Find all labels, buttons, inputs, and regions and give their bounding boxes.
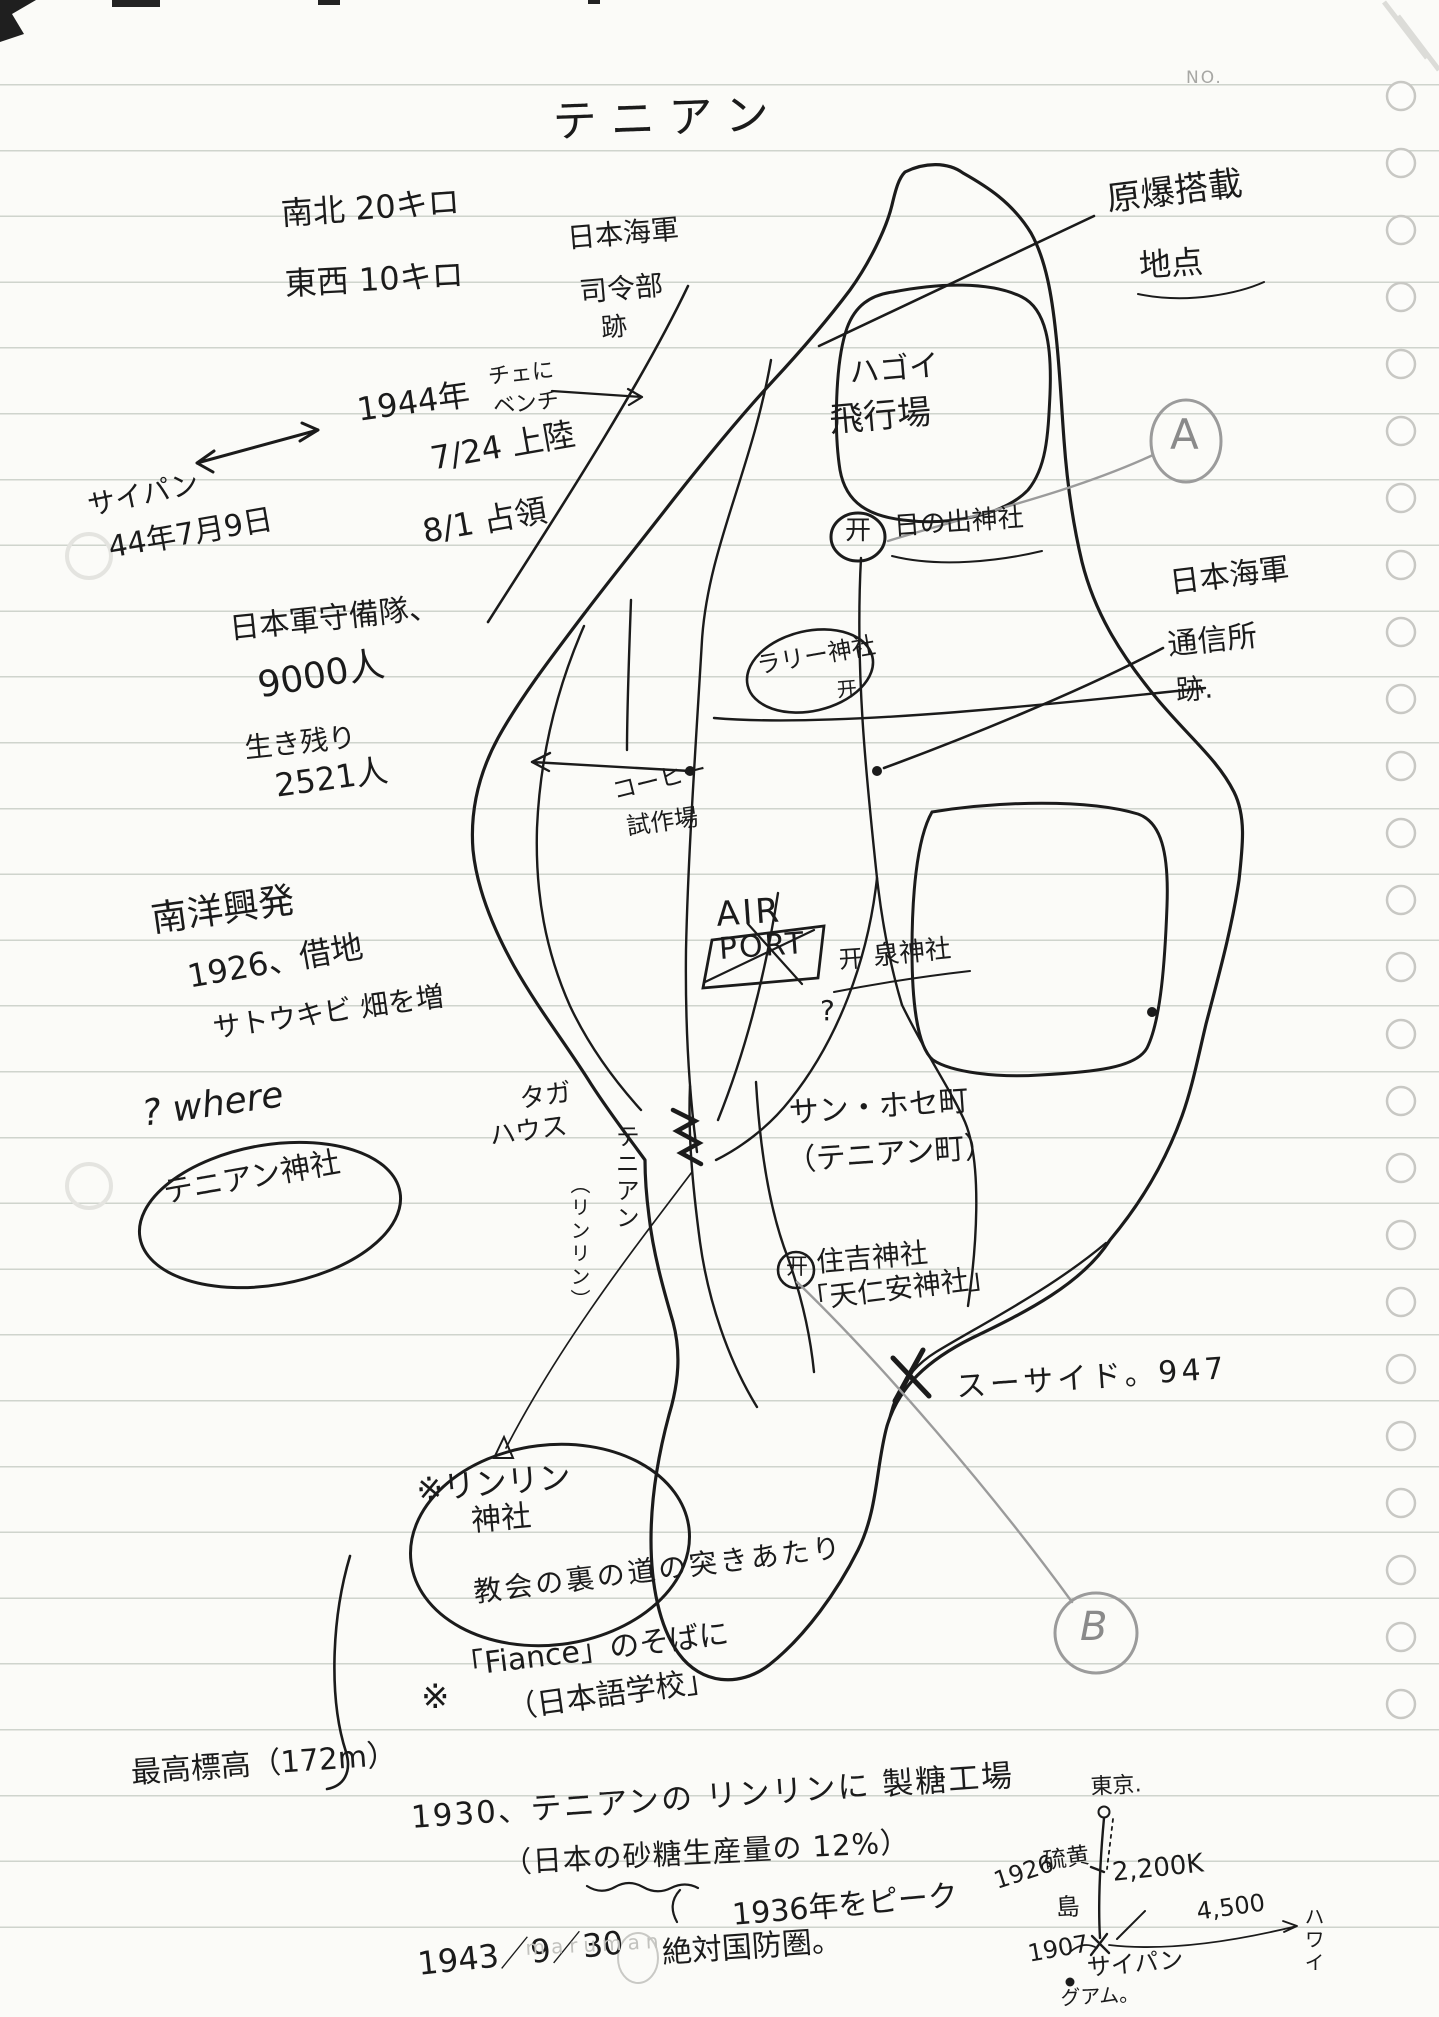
marker-b-label: B xyxy=(1080,1606,1107,1648)
isthmus-scribble xyxy=(673,1110,701,1164)
navy-hq-line2: 司令部 xyxy=(578,271,664,308)
field-region xyxy=(912,803,1167,1076)
fiance-asterisk: ※ xyxy=(421,1680,450,1716)
navy-comm-line3: 跡. xyxy=(1175,673,1214,705)
rinrin-vertical-label: （リンリン） xyxy=(568,1174,589,1314)
scan-artifacts xyxy=(0,0,1439,70)
izumi-torii-icon: 开 xyxy=(838,946,864,973)
pencil-markers xyxy=(618,400,1221,1983)
punch-holes xyxy=(67,534,111,1208)
airfield-label-line2: 飛行場 xyxy=(828,395,933,439)
route-tokyo-label: 東京. xyxy=(1090,1773,1142,1799)
sumiyoshi-torii-icon: 开 xyxy=(786,1256,808,1279)
tinian-vertical-label: テニアン xyxy=(612,1124,637,1264)
hand-drawn-map xyxy=(0,0,1439,2017)
route-hawaii-label: ハワイ xyxy=(1302,1906,1323,1996)
binder-holes xyxy=(1387,82,1415,1718)
rinrin-shrine-line2: 神社 xyxy=(470,1501,533,1538)
rally-torii-icon: 开 xyxy=(836,678,858,701)
route-iwojima-label-2: 島 xyxy=(1055,1894,1081,1921)
airfield-label-line1: ハゴイ xyxy=(848,350,940,389)
page-title: テニアン xyxy=(552,92,784,146)
emphasis-marks xyxy=(587,1883,698,1922)
island-outline xyxy=(472,165,1242,1680)
route-guam-label: グアム。 xyxy=(1060,1984,1140,2009)
izumi-question-mark: ? xyxy=(820,996,835,1025)
suicide-x-mark xyxy=(893,1350,929,1401)
airport-label-port: PORT xyxy=(718,928,807,965)
navy-hq-line3: 跡 xyxy=(600,314,628,343)
abomb-note-line2: 地点 xyxy=(1138,246,1204,284)
marker-a-label: A xyxy=(1170,413,1199,457)
no-label: NO. xyxy=(1186,70,1223,88)
hinode-torii-icon: 开 xyxy=(845,518,871,545)
